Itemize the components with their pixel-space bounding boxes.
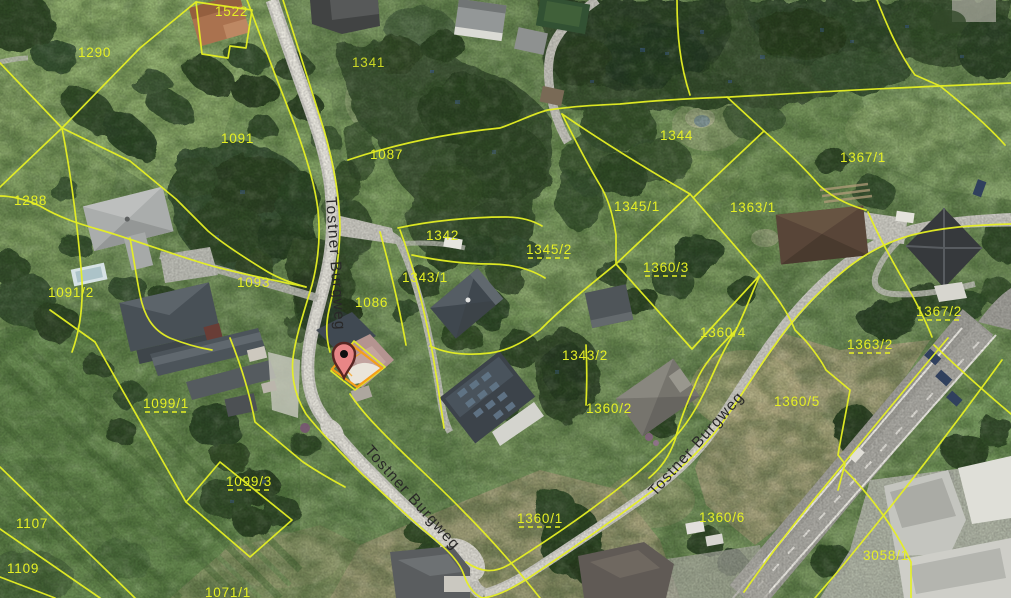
svg-text:1341: 1341	[352, 55, 385, 70]
svg-text:1093: 1093	[237, 275, 270, 290]
svg-text:1360/1: 1360/1	[517, 511, 563, 526]
svg-text:1360/2: 1360/2	[586, 401, 632, 416]
svg-text:1087: 1087	[370, 147, 403, 162]
svg-text:1367/2: 1367/2	[916, 304, 962, 319]
svg-text:1288: 1288	[14, 193, 47, 208]
svg-text:1071/1: 1071/1	[205, 585, 251, 598]
svg-text:1109: 1109	[7, 561, 39, 576]
svg-text:3058/1: 3058/1	[863, 548, 909, 563]
svg-text:1099/1: 1099/1	[143, 396, 189, 411]
svg-text:1360/4: 1360/4	[700, 325, 746, 340]
svg-text:1086: 1086	[355, 295, 388, 310]
svg-text:1360/5: 1360/5	[774, 394, 820, 409]
svg-text:1099/3: 1099/3	[226, 474, 272, 489]
svg-text:1522: 1522	[215, 4, 248, 19]
svg-text:1343/1: 1343/1	[402, 270, 448, 285]
svg-text:1345/1: 1345/1	[614, 199, 660, 214]
svg-text:1091/2: 1091/2	[48, 285, 94, 300]
svg-text:1343/2: 1343/2	[562, 348, 608, 363]
svg-text:1360/6: 1360/6	[699, 510, 745, 525]
svg-text:1367/1: 1367/1	[840, 150, 886, 165]
svg-text:1107: 1107	[16, 516, 48, 531]
svg-text:1344: 1344	[660, 128, 693, 143]
svg-text:1290: 1290	[78, 45, 111, 60]
svg-text:1342: 1342	[426, 228, 459, 243]
svg-text:1360/3: 1360/3	[643, 260, 689, 275]
svg-text:1091: 1091	[221, 131, 254, 146]
svg-text:1363/2: 1363/2	[847, 337, 893, 352]
svg-text:1363/1: 1363/1	[730, 200, 776, 215]
svg-text:1345/2: 1345/2	[526, 242, 572, 257]
